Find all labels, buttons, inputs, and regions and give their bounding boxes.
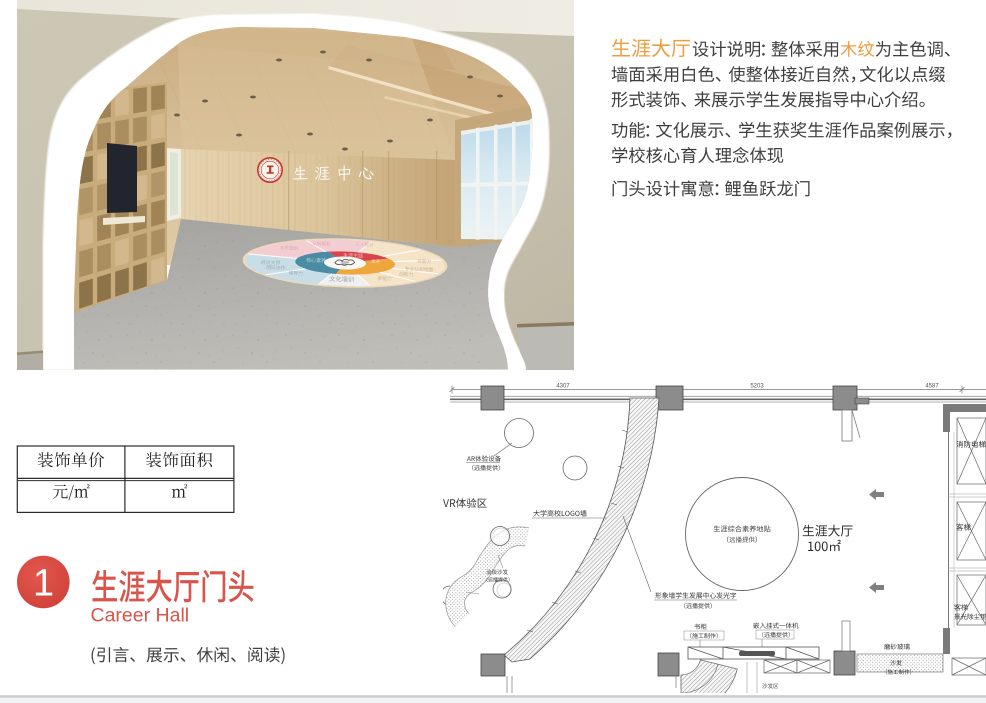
svg-text:1: 1 [33,563,54,605]
svg-text:4587: 4587 [925,384,939,390]
svg-text:5203: 5203 [750,384,764,390]
svg-text:Career Hall: Career Hall [91,605,190,627]
svg-text:4307: 4307 [556,384,570,390]
